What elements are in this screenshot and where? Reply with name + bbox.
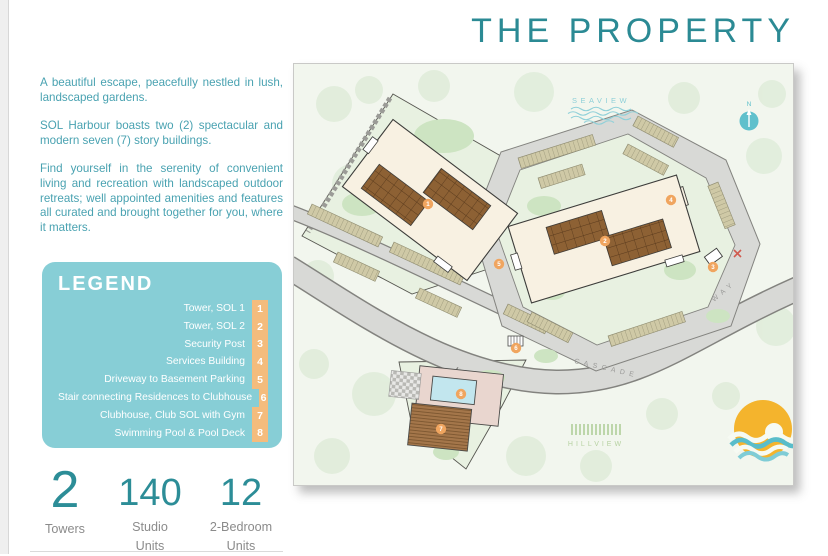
- legend-item-label: Security Post: [58, 336, 252, 354]
- legend-item-label: Tower, SOL 1: [58, 300, 252, 318]
- legend-item-label: Services Building: [58, 353, 252, 371]
- legend-row: Driveway to Basement Parking 5: [58, 371, 268, 389]
- stat-towers: 2 Towers: [20, 462, 110, 539]
- swimming-pool: [430, 376, 476, 404]
- intro-paragraph: Find yourself in the serenity of conveni…: [40, 162, 283, 235]
- legend-item-number: 3: [252, 336, 268, 354]
- hillview-text: HILLVIEW: [568, 441, 624, 448]
- marker-1-tower-sol-1: 1: [423, 199, 433, 209]
- intro-text: A beautiful escape, peacefully nestled i…: [40, 76, 283, 249]
- svg-text:4: 4: [669, 197, 673, 204]
- legend-row: Clubhouse, Club SOL with Gym 7: [58, 407, 268, 425]
- stat-value: 2: [20, 464, 110, 516]
- legend-item-number: 1: [252, 300, 268, 318]
- legend-row: Tower, SOL 1 1: [58, 300, 268, 318]
- marker-6-stair: 6: [511, 343, 521, 353]
- svg-text:5: 5: [497, 261, 501, 268]
- legend-row: Services Building 4: [58, 353, 268, 371]
- site-plan-map: SEAVIEW N HILLVIEW CASCADE WAY: [294, 64, 793, 485]
- legend-item-number: 4: [252, 353, 268, 371]
- legend-item-number: 5: [252, 371, 268, 389]
- legend-item-number: 2: [252, 318, 268, 336]
- marker-2-tower-sol-2: 2: [600, 236, 610, 246]
- legend-item-label: Clubhouse, Club SOL with Gym: [58, 407, 252, 425]
- legend-row: Security Post 3: [58, 336, 268, 354]
- stat-2bedroom-units: 12 2-Bedroom Units: [192, 462, 290, 556]
- legend-panel: LEGEND Tower, SOL 1 1 Tower, SOL 2 2 Sec…: [42, 262, 282, 448]
- svg-text:7: 7: [439, 426, 443, 433]
- marker-7-clubhouse: 7: [436, 424, 446, 434]
- legend-row: Stair connecting Residences to Clubhouse…: [58, 389, 268, 407]
- legend-item-number: 8: [252, 425, 268, 443]
- legend-row: Tower, SOL 2 2: [58, 318, 268, 336]
- plaza-pavers: [389, 371, 422, 400]
- intro-paragraph: SOL Harbour boasts two (2) spectacular a…: [40, 119, 283, 148]
- page-title: THE PROPERTY: [471, 12, 795, 51]
- svg-text:1: 1: [426, 201, 430, 208]
- hillview-ticks-icon: [572, 424, 620, 435]
- marker-8-pool: 8: [456, 389, 466, 399]
- legend-rows: Tower, SOL 1 1 Tower, SOL 2 2 Security P…: [58, 300, 268, 442]
- marker-4-services-building: 4: [666, 195, 676, 205]
- stat-value: 12: [192, 474, 290, 512]
- marker-5-basement-driveway: 5: [494, 259, 504, 269]
- legend-item-label: Tower, SOL 2: [58, 318, 252, 336]
- legend-item-number: 6: [259, 389, 268, 407]
- legend-item-label: Swimming Pool & Pool Deck: [58, 425, 252, 443]
- bottom-divider: [30, 551, 283, 552]
- stats-row: 2 Towers 140 Studio Units 12 2-Bedroom U…: [0, 462, 292, 554]
- legend-title: LEGEND: [58, 272, 268, 296]
- legend-item-label: Driveway to Basement Parking: [58, 371, 252, 389]
- svg-text:8: 8: [459, 391, 463, 398]
- marker-3-security-post: 3: [708, 262, 718, 272]
- seaview-text: SEAVIEW: [572, 96, 630, 105]
- compass-north-text: N: [747, 101, 752, 108]
- svg-text:2: 2: [603, 238, 607, 245]
- stat-studio-units: 140 Studio Units: [106, 462, 194, 556]
- legend-row: Swimming Pool & Pool Deck 8: [58, 425, 268, 443]
- legend-item-number: 7: [252, 407, 268, 425]
- svg-text:6: 6: [514, 345, 518, 352]
- legend-item-label: Stair connecting Residences to Clubhouse: [58, 389, 259, 407]
- intro-paragraph: A beautiful escape, peacefully nestled i…: [40, 76, 283, 105]
- svg-text:3: 3: [711, 264, 715, 271]
- site-plan-panel: SEAVIEW N HILLVIEW CASCADE WAY: [293, 63, 794, 486]
- stat-label: Towers: [20, 520, 110, 539]
- stat-value: 140: [106, 474, 194, 512]
